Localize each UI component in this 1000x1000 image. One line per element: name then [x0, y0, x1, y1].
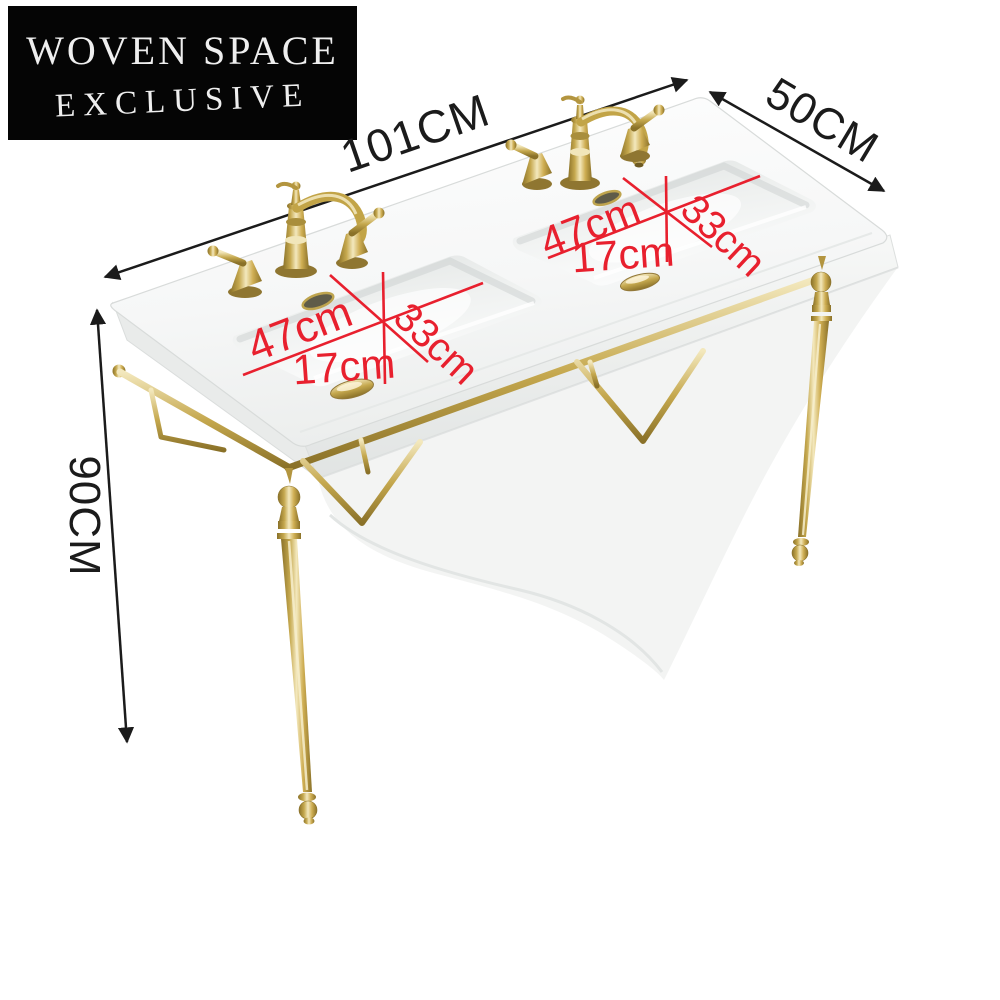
left-leg-ball-foot: [299, 801, 317, 819]
right-basin-depth-label: 17cm: [570, 230, 675, 279]
height-dimension-label: 90CM: [62, 455, 106, 576]
right-leg-ball-foot: [792, 545, 808, 561]
brand-name: WOVEN SPACE: [26, 27, 339, 74]
front-left-leg: [277, 468, 317, 825]
brand-tagline: EXCLUSIVE: [54, 77, 311, 125]
brand-banner: WOVEN SPACE EXCLUSIVE: [8, 6, 357, 140]
product-dimension-diagram: WOVEN SPACE EXCLUSIVE 101CM 50CM 90CM 47…: [0, 0, 1000, 1000]
left-basin-depth-label: 17cm: [291, 342, 396, 391]
